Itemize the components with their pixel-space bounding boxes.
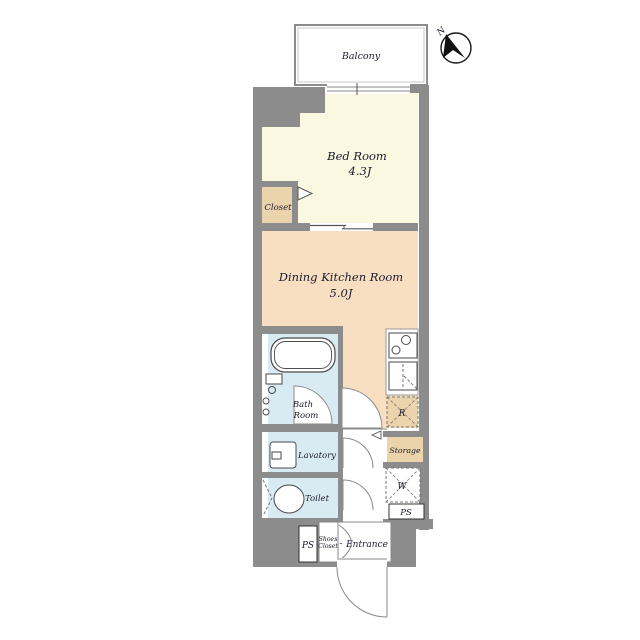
storage-label: Storage <box>389 446 421 455</box>
washer-label: W <box>397 482 407 492</box>
kitchen-unit <box>386 329 418 395</box>
balcony-label: Balcony <box>341 51 381 62</box>
closet-label: Closet <box>264 203 292 213</box>
floor-plan: Balcony N <box>0 0 640 640</box>
balcony: Balcony <box>295 25 427 85</box>
dining-area: 5.0J <box>330 286 354 300</box>
toilet-label: Toilet <box>305 494 330 504</box>
refrigerator-label: R <box>398 409 406 419</box>
entrance-door-arc <box>337 567 387 617</box>
step-arrow-icon <box>372 431 381 439</box>
bedroom-name: Bed Room <box>326 149 387 163</box>
shoes-closet-line1: Shoes <box>319 536 338 543</box>
bath-label-line2: Room <box>293 411 319 421</box>
bath-label-line1: Bath <box>292 400 313 410</box>
bedroom-window <box>327 83 410 95</box>
entrance-leader: - <box>339 539 342 549</box>
refrigerator-space: R <box>387 397 418 427</box>
bedroom-area: 4.3J <box>348 164 373 178</box>
ps-right-label: PS <box>399 508 412 518</box>
dining-name: Dining Kitchen Room <box>278 270 404 284</box>
toilet-door-arc <box>343 480 373 510</box>
lavatory-door-arc <box>343 438 373 468</box>
stove-icon <box>389 333 417 358</box>
sink-counter-icon <box>389 362 418 390</box>
entrance-label: Entrance <box>345 540 388 550</box>
ps-left-label: PS <box>301 541 314 551</box>
bathtub-icon <box>271 338 335 372</box>
compass-north-icon: N <box>435 25 471 63</box>
sliding-door <box>310 223 373 231</box>
toilet-icon <box>274 485 304 513</box>
shoes-closet-line2: Closet <box>318 543 338 550</box>
lavatory-label: Lavatory <box>297 451 336 461</box>
washbasin-icon <box>270 442 296 468</box>
floor-plan-canvas: Balcony N <box>0 0 640 640</box>
